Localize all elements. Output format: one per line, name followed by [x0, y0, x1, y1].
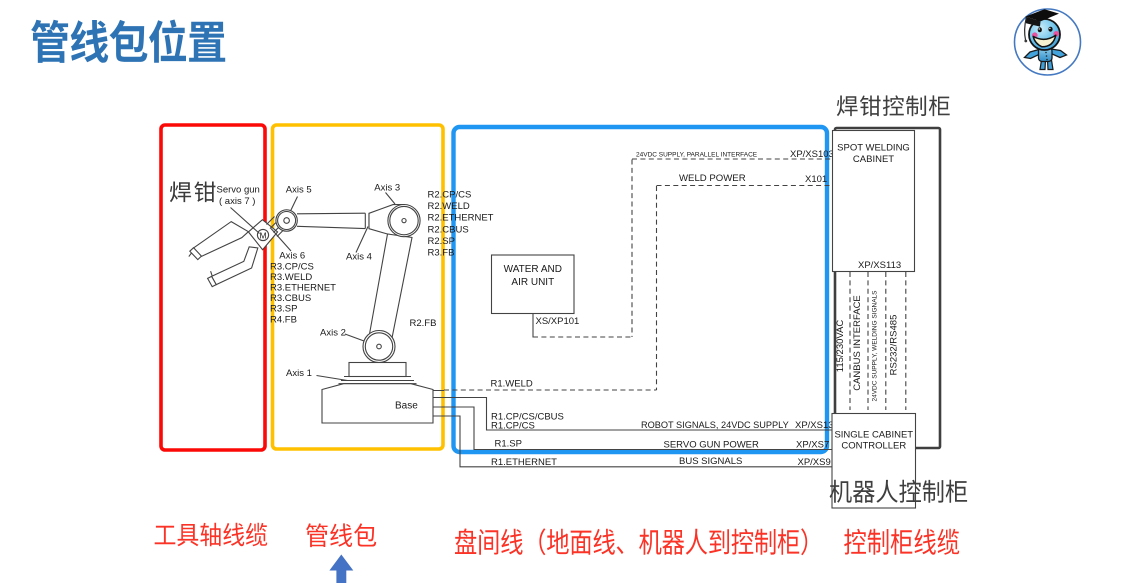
svg-text:R2.CP/CS: R2.CP/CS	[428, 190, 472, 201]
svg-text:Axis 4: Axis 4	[346, 252, 372, 263]
svg-text:115/230VAC: 115/230VAC	[835, 320, 846, 373]
svg-text:R2.SP: R2.SP	[428, 236, 455, 247]
svg-text:Axis 6: Axis 6	[279, 251, 305, 262]
svg-text:XP/XS9: XP/XS9	[798, 457, 831, 468]
svg-text:ROBOT SIGNALS, 24VDC SUPPLY: ROBOT SIGNALS, 24VDC SUPPLY	[641, 420, 789, 430]
svg-text:R3.CBUS: R3.CBUS	[270, 293, 311, 304]
svg-text:XP/XS103: XP/XS103	[790, 149, 834, 160]
svg-text:R3.ETHERNET: R3.ETHERNET	[270, 283, 336, 294]
svg-text:24VDC SUPPLY, PARALLEL INTERFA: 24VDC SUPPLY, PARALLEL INTERFACE	[636, 152, 758, 159]
svg-text:BUS SIGNALS: BUS SIGNALS	[679, 456, 742, 467]
svg-text:X101: X101	[805, 174, 827, 185]
svg-text:WATER AND: WATER AND	[504, 264, 562, 275]
svg-text:XS/XP101: XS/XP101	[536, 316, 580, 327]
svg-text:XP/XS7: XP/XS7	[796, 440, 829, 451]
svg-text:Axis 1: Axis 1	[286, 368, 312, 379]
svg-text:( axis 7 ): ( axis 7 )	[219, 196, 255, 207]
svg-text:R2.WELD: R2.WELD	[428, 201, 470, 212]
svg-text:R1.CP/CS: R1.CP/CS	[491, 421, 535, 432]
svg-text:Servo gun: Servo gun	[217, 184, 260, 195]
svg-text:R3.FB: R3.FB	[428, 247, 455, 258]
svg-text:CONTROLLER: CONTROLLER	[841, 441, 906, 452]
svg-text:Base: Base	[395, 401, 418, 412]
svg-text:R2.CBUS: R2.CBUS	[428, 224, 469, 235]
svg-text:R2.ETHERNET: R2.ETHERNET	[428, 213, 494, 224]
svg-text:R3.CP/CS: R3.CP/CS	[270, 261, 314, 272]
svg-text:R1.SP: R1.SP	[495, 439, 522, 450]
svg-text:R1.WELD: R1.WELD	[491, 379, 533, 390]
svg-text:R2.FB: R2.FB	[410, 318, 437, 329]
svg-text:R3.SP: R3.SP	[270, 304, 297, 315]
svg-text:CANBUS INTERFACE: CANBUS INTERFACE	[852, 295, 863, 391]
svg-text:XP/XS113: XP/XS113	[858, 260, 901, 271]
svg-text:Axis 5: Axis 5	[286, 184, 312, 195]
svg-text:Axis 2: Axis 2	[320, 328, 346, 339]
svg-text:RS232/RS485: RS232/RS485	[889, 315, 900, 376]
svg-text:AIR UNIT: AIR UNIT	[511, 277, 554, 288]
svg-text:R3.WELD: R3.WELD	[270, 272, 312, 283]
svg-text:XP/XS13: XP/XS13	[795, 420, 834, 431]
svg-text:24VDC SUPPLY, WELDING SIGNALS: 24VDC SUPPLY, WELDING SIGNALS	[872, 290, 879, 402]
svg-text:R1.ETHERNET: R1.ETHERNET	[491, 457, 557, 468]
svg-text:WELD POWER: WELD POWER	[679, 173, 746, 184]
svg-text:M: M	[259, 230, 266, 240]
svg-text:Axis 3: Axis 3	[374, 183, 400, 194]
svg-text:SINGLE CABINET: SINGLE CABINET	[834, 430, 913, 441]
svg-text:SERVO GUN POWER: SERVO GUN POWER	[664, 440, 760, 451]
svg-text:R4.FB: R4.FB	[270, 314, 297, 325]
svg-text:CABINET: CABINET	[853, 154, 894, 165]
svg-text:SPOT WELDING: SPOT WELDING	[837, 143, 910, 154]
